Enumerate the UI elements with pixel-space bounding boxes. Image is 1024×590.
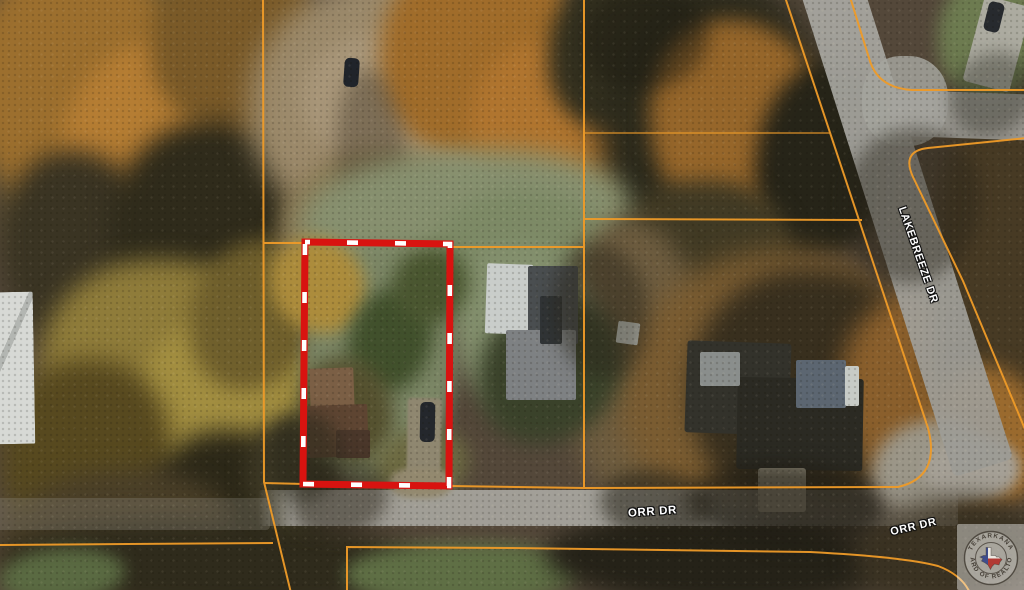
watermark-seal: TEXARKANA BOARD OF REALTORS	[956, 523, 1024, 590]
realtor-watermark: TEXARKANA BOARD OF REALTORS	[957, 524, 1024, 590]
parcel-lines-overlay	[0, 0, 1024, 590]
subject-parcel-outline	[303, 242, 450, 486]
aerial-map: LAKEBREEZE DR ORR DR ORR DR TEXARKANA	[0, 0, 1024, 590]
parcel-boundary-lines	[0, 0, 1024, 590]
